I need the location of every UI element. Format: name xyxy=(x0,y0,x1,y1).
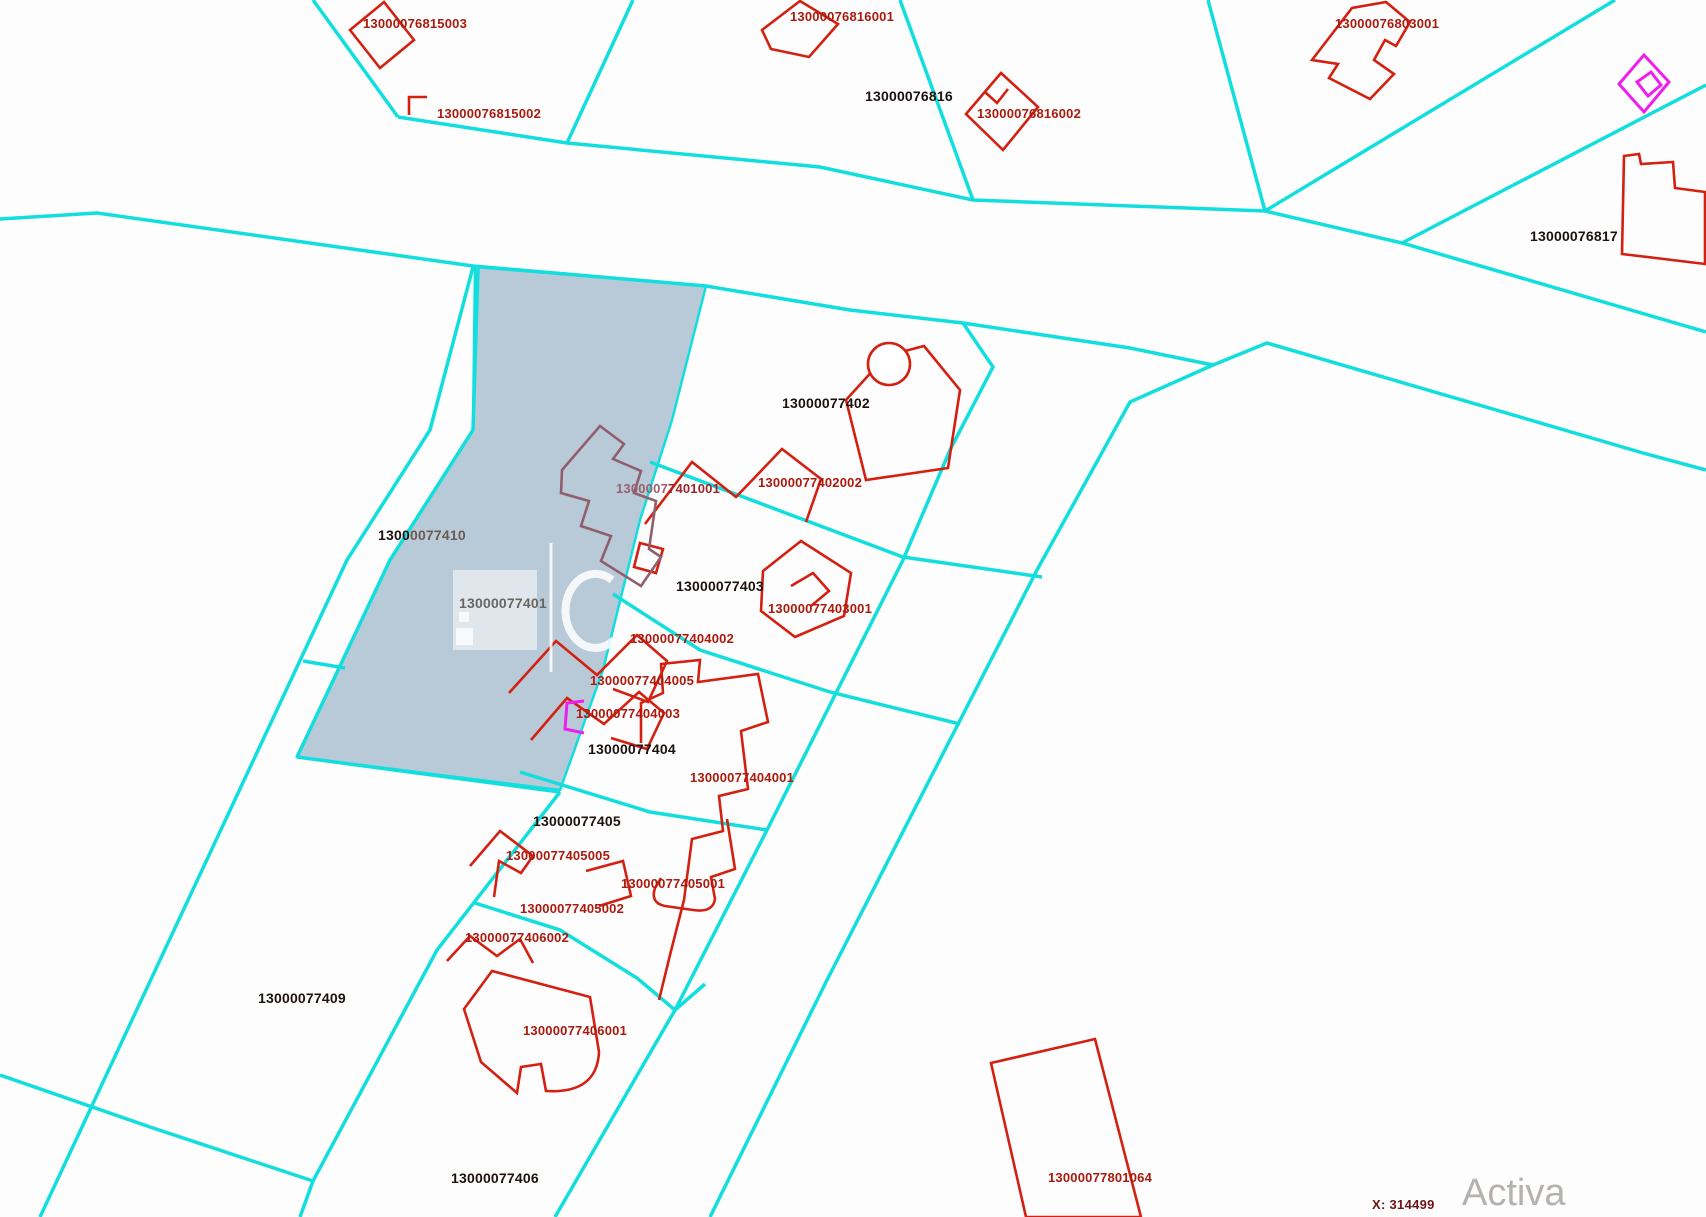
building-76816002 xyxy=(966,73,1038,150)
building-77405001 xyxy=(654,819,735,911)
building-77402002 xyxy=(645,449,821,524)
building-76815003 xyxy=(350,2,414,68)
parcel-outline-77801064 xyxy=(991,1039,1141,1217)
magenta-features xyxy=(565,55,1669,733)
magenta-building-topright-inner xyxy=(1637,72,1661,96)
building-76803001 xyxy=(1312,2,1410,99)
selected-parcel-highlight[interactable] xyxy=(297,267,706,790)
building-76816002-notch xyxy=(985,89,1008,103)
activate-windows-watermark: Activa xyxy=(1462,1172,1565,1215)
building-77406001 xyxy=(464,971,599,1093)
building-76817 xyxy=(1622,154,1705,264)
building-77403001 xyxy=(761,541,851,637)
building-76816001 xyxy=(762,1,838,57)
building-77406002 xyxy=(447,936,533,963)
parcel-map-drawing xyxy=(0,0,1706,1217)
building-77405-mid xyxy=(586,861,631,906)
building-77403001-notch xyxy=(791,573,829,606)
parcel-boundary-lines xyxy=(0,0,1706,1217)
building-mark-76815002 xyxy=(409,97,427,115)
map-canvas[interactable]: 1300007681500313000076815002130000768160… xyxy=(0,0,1706,1217)
cursor-coordinate-readout: X: 314499 xyxy=(1372,1197,1435,1212)
building-77402-round-notch xyxy=(868,343,910,385)
